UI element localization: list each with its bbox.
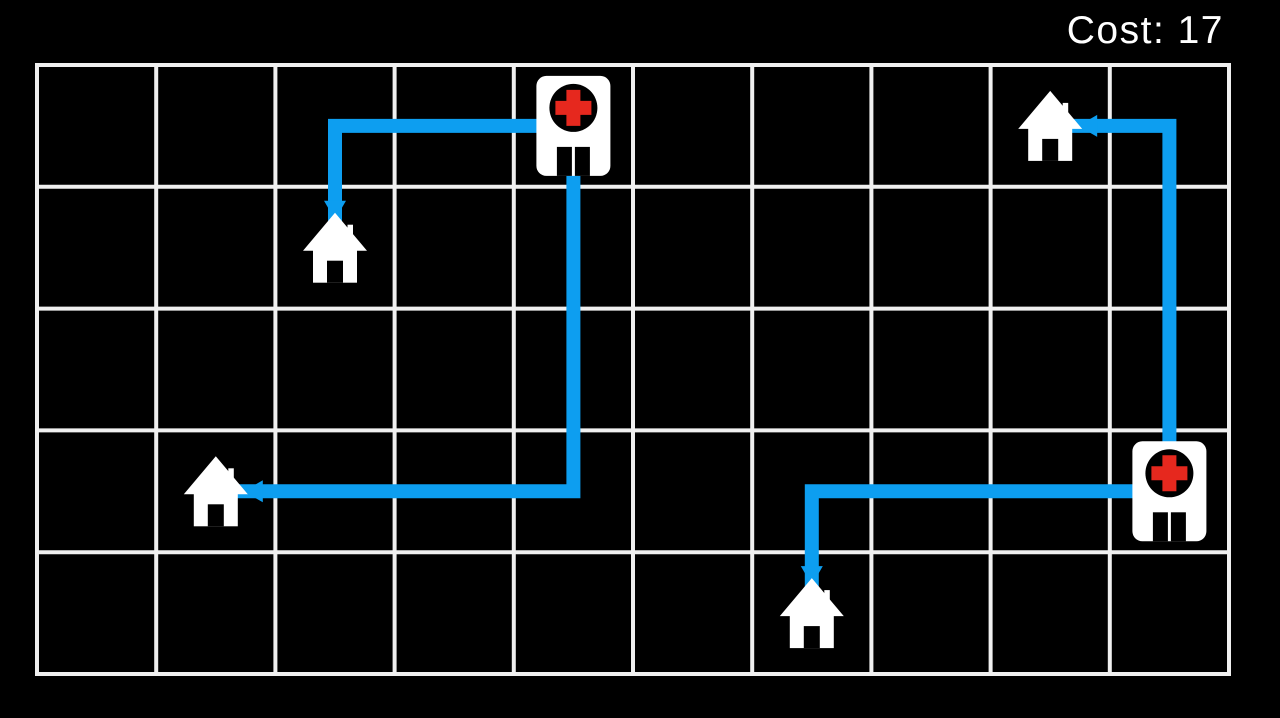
grid-cell-0-2[interactable] (37, 309, 156, 431)
grid-cell-5-2[interactable] (633, 309, 752, 431)
grid-cell-6-0[interactable] (752, 65, 871, 187)
grid-cell-0-3[interactable] (37, 430, 156, 552)
grid-cell-2-4[interactable] (275, 552, 394, 674)
hospital-door-right (1171, 512, 1186, 541)
game-board[interactable] (0, 0, 1280, 718)
grid-cell-7-1[interactable] (871, 187, 990, 309)
grid-cell-5-3[interactable] (633, 430, 752, 552)
cost-text: Cost: 17 (1067, 9, 1224, 52)
grid-cell-1-1[interactable] (156, 187, 275, 309)
grid-cell-0-0[interactable] (37, 65, 156, 187)
grid-cell-8-4[interactable] (991, 552, 1110, 674)
house-door (804, 626, 820, 648)
grid-cell-7-2[interactable] (871, 309, 990, 431)
house-door (1042, 139, 1058, 161)
game-screen: Cost: 17 (0, 0, 1280, 718)
grid-cell-6-2[interactable] (752, 309, 871, 431)
grid-cell-8-1[interactable] (991, 187, 1110, 309)
house-door (208, 504, 224, 526)
hospital-door-left (557, 147, 572, 176)
grid-cell-0-4[interactable] (37, 552, 156, 674)
hospital-2[interactable] (1132, 441, 1206, 541)
grid-cell-8-2[interactable] (991, 309, 1110, 431)
grid-cell-4-4[interactable] (514, 552, 633, 674)
grid-cell-1-2[interactable] (156, 309, 275, 431)
grid-cell-5-1[interactable] (633, 187, 752, 309)
grid-cell-3-1[interactable] (395, 187, 514, 309)
grid-cell-5-0[interactable] (633, 65, 752, 187)
grid-cell-3-4[interactable] (395, 552, 514, 674)
grid-cell-1-0[interactable] (156, 65, 275, 187)
grid-cell-6-1[interactable] (752, 187, 871, 309)
hospital-door-right (575, 147, 590, 176)
grid-cell-7-0[interactable] (871, 65, 990, 187)
house-door (327, 261, 343, 283)
grid-cell-5-4[interactable] (633, 552, 752, 674)
cost-display: Cost: 17 (1067, 4, 1224, 59)
grid-cell-0-1[interactable] (37, 187, 156, 309)
hospital-1[interactable] (536, 76, 610, 176)
grid-cell-2-2[interactable] (275, 309, 394, 431)
grid-cell-3-2[interactable] (395, 309, 514, 431)
grid-cell-9-4[interactable] (1110, 552, 1229, 674)
grid-cell-1-4[interactable] (156, 552, 275, 674)
grid-cell-7-4[interactable] (871, 552, 990, 674)
hospital-door-left (1153, 512, 1168, 541)
